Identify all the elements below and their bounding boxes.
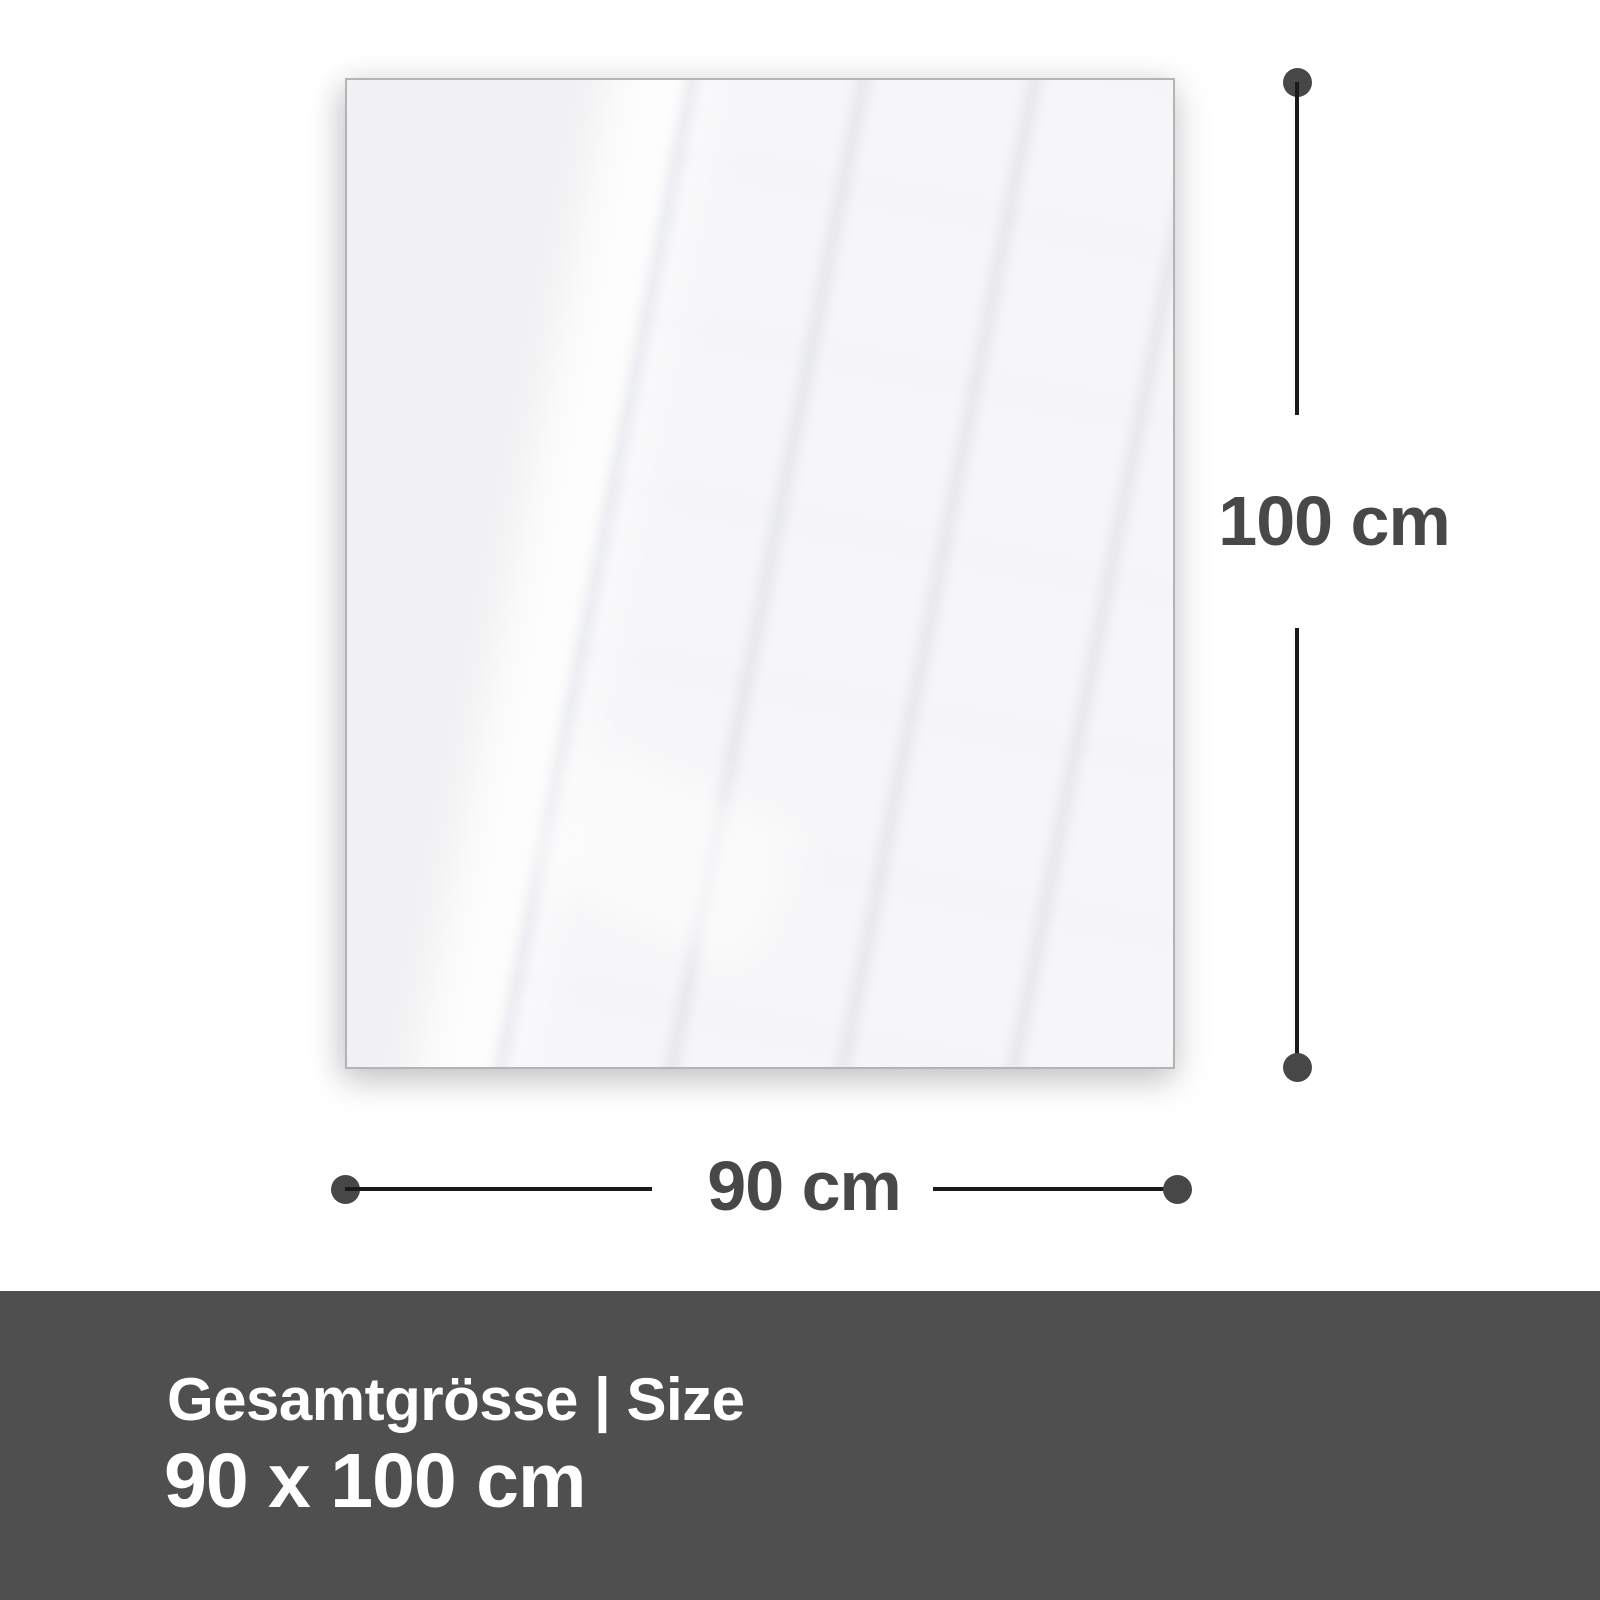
glass-panel <box>345 78 1175 1069</box>
size-banner: Gesamtgrösse | Size 90 x 100 cm <box>0 1291 1600 1600</box>
dimension-endpoint-dot <box>1163 1175 1192 1204</box>
height-label: 100 cm <box>1218 481 1449 561</box>
banner-title: Gesamtgrösse | Size <box>167 1365 745 1434</box>
height-dimension-line-lower <box>1295 628 1299 1067</box>
width-label: 90 cm <box>707 1146 900 1226</box>
height-dimension-line-upper <box>1295 82 1299 415</box>
width-dimension-line-left <box>345 1187 652 1191</box>
banner-size-value: 90 x 100 cm <box>164 1437 585 1526</box>
dimension-endpoint-dot <box>1283 1053 1312 1082</box>
width-dimension-line-right <box>933 1187 1177 1191</box>
product-size-diagram: 100 cm 90 cm Gesamtgrösse | Size 90 x 10… <box>0 0 1600 1600</box>
